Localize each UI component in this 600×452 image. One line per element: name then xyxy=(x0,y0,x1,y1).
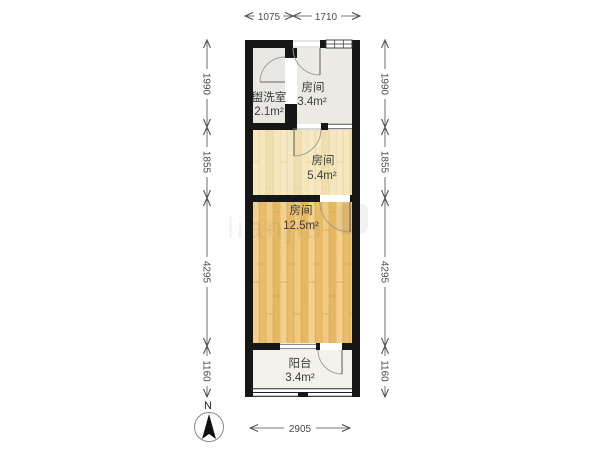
dim-left-4: 1160 xyxy=(201,360,212,382)
room-5-4-area: 5.4m² xyxy=(307,170,337,182)
wall-balcony-pier xyxy=(316,343,320,350)
room-12-5-area: 12.5m² xyxy=(283,220,319,232)
balcony-name: 阳台 xyxy=(289,356,312,370)
dim-bottom: 2905 xyxy=(289,424,312,435)
wall-mid2-left xyxy=(245,195,320,202)
wall-washroom-upper xyxy=(285,48,297,58)
dim-top-2: 1710 xyxy=(315,12,338,23)
room-3-4-area: 3.4m² xyxy=(297,96,327,108)
wall-balcony-right xyxy=(342,343,360,350)
wall-mid2-right xyxy=(350,195,360,202)
compass-north-label: N xyxy=(204,400,212,412)
washroom-area: 2.1m² xyxy=(254,106,284,118)
balcony-area: 3.4m² xyxy=(285,372,315,384)
room-12-5-name: 房间 xyxy=(290,204,313,217)
dim-left-3: 4295 xyxy=(201,261,212,284)
dim-right-3: 4295 xyxy=(379,261,390,284)
room-3-4-name: 房间 xyxy=(302,81,325,94)
wall-mid1-left xyxy=(245,123,293,130)
dim-left-2: 1855 xyxy=(201,151,212,174)
dim-top-1: 1075 xyxy=(258,12,281,23)
wall-top-pier xyxy=(320,40,326,48)
window-bottom-mullion xyxy=(298,392,308,397)
dim-right-1: 1990 xyxy=(379,73,390,96)
floorplan-svg: lianjia xyxy=(0,0,600,452)
room-5-4-floor xyxy=(253,130,352,195)
wall-mid1-pier xyxy=(321,123,328,130)
wall-balcony-left xyxy=(253,343,280,350)
room-5-4-name: 房间 xyxy=(312,154,335,167)
compass: N xyxy=(195,400,224,442)
floorplan-image: lianjia xyxy=(0,0,600,452)
wall-top xyxy=(245,40,293,48)
dim-right-4: 1160 xyxy=(379,360,390,382)
washroom-name: 盥洗室 xyxy=(252,90,287,104)
dim-right-2: 1855 xyxy=(379,151,390,174)
dim-left-1: 1990 xyxy=(201,73,212,96)
